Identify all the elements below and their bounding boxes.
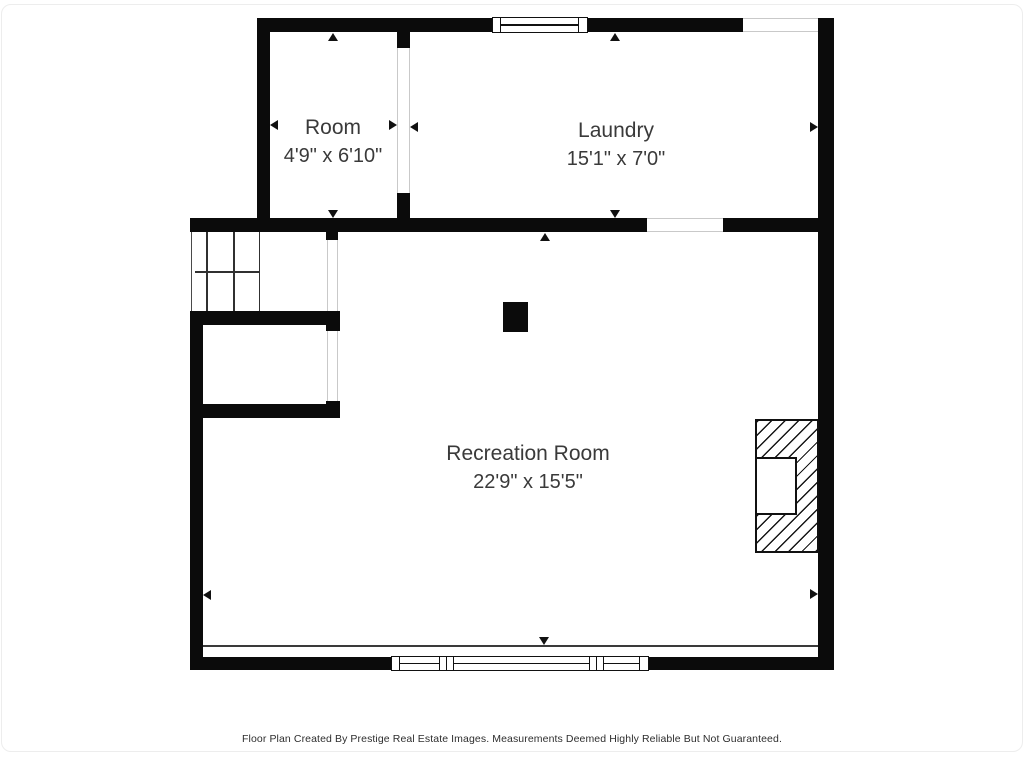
room-name: Laundry	[567, 117, 666, 145]
wall-middle-left-segment	[190, 218, 647, 232]
top-window	[492, 17, 588, 33]
dimension-arrow-left	[270, 120, 278, 130]
window-sill-line	[203, 645, 818, 647]
opening-hall-recreation	[327, 240, 338, 311]
wall-bottom-left-segment	[190, 657, 392, 670]
window-mullion	[640, 657, 648, 670]
dimension-arrow-down	[610, 210, 620, 218]
wall-right-exterior	[818, 18, 834, 670]
window-mullion	[493, 18, 501, 32]
fireplace	[755, 419, 819, 553]
dimension-arrow-left	[410, 122, 418, 132]
door-jamb-top	[326, 232, 338, 240]
wall-closet-bottom	[190, 404, 338, 418]
window-pane	[604, 657, 640, 670]
room-dimensions: 15'1" x 7'0"	[567, 145, 666, 173]
dimension-arrow-up	[610, 33, 620, 41]
opening-laundry-recreation	[647, 218, 723, 232]
staircase	[191, 232, 259, 311]
firebox	[755, 457, 797, 515]
dimension-arrow-down	[328, 210, 338, 218]
dimension-arrow-left	[203, 590, 211, 600]
floor-plan-canvas: Room 4'9" x 6'10" Laundry 15'1" x 7'0" R…	[0, 0, 1024, 768]
room-label-recreation: Recreation Room 22'9" x 15'5"	[446, 439, 609, 497]
support-post	[503, 302, 528, 332]
opening-closet-recreation	[327, 331, 338, 401]
wall-left-exterior	[190, 311, 203, 670]
footer-disclaimer: Floor Plan Created By Prestige Real Esta…	[0, 733, 1024, 745]
wall-closet-bottom-cap	[326, 401, 340, 418]
wall-room-laundry-stub-top	[397, 32, 410, 48]
dimension-arrow-right	[810, 589, 818, 599]
dimension-arrow-down	[539, 637, 549, 645]
window-pane	[501, 18, 579, 32]
bottom-window-assembly	[391, 656, 649, 671]
stair-landing-line	[195, 271, 259, 273]
window-glass-line	[604, 663, 639, 665]
window-mullion	[392, 657, 400, 670]
window-glass-line	[454, 663, 589, 665]
window-mullion	[579, 18, 587, 32]
image-border-frame	[1, 4, 1023, 752]
window-mullion	[597, 657, 604, 670]
window-mullion	[590, 657, 597, 670]
room-name: Room	[284, 114, 383, 142]
window-pane	[400, 657, 440, 670]
wall-below-stairs-cap	[326, 311, 340, 331]
dimension-arrow-right	[389, 120, 397, 130]
dimension-arrow-up	[540, 233, 550, 241]
opening-top-right	[743, 18, 818, 32]
window-glass-line	[501, 24, 578, 26]
wall-room-left	[257, 18, 270, 232]
window-mullion	[440, 657, 447, 670]
room-label-laundry: Laundry 15'1" x 7'0"	[567, 117, 666, 173]
window-mullion	[447, 657, 454, 670]
room-dimensions: 22'9" x 15'5"	[446, 468, 609, 497]
window-glass-line	[400, 663, 439, 665]
wall-below-stairs	[190, 311, 338, 325]
room-dimensions: 4'9" x 6'10"	[284, 142, 383, 170]
room-name: Recreation Room	[446, 439, 609, 468]
wall-middle-right-segment	[723, 218, 818, 232]
wall-top-left-segment	[258, 18, 492, 32]
room-label-room: Room 4'9" x 6'10"	[284, 114, 383, 170]
wall-top-right-segment	[588, 18, 743, 32]
window-pane	[454, 657, 590, 670]
dimension-arrow-up	[328, 33, 338, 41]
dimension-arrow-right	[810, 122, 818, 132]
wall-bottom-right-segment	[648, 657, 834, 670]
opening-room-laundry	[397, 48, 410, 193]
